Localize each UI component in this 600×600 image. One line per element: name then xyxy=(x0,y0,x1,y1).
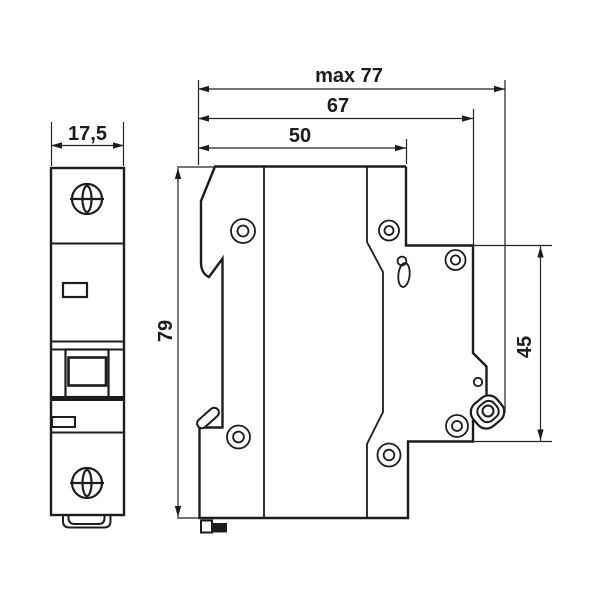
arrowhead-right-icon xyxy=(395,145,406,151)
arrowhead-up-icon xyxy=(537,247,543,258)
dim-depth-50: 50 xyxy=(198,125,407,164)
rivet-circle xyxy=(379,221,399,241)
side-view xyxy=(195,167,509,519)
dim-height-79: 79 xyxy=(155,167,214,518)
rivet-circle xyxy=(378,444,401,467)
keyhole-slot xyxy=(397,257,411,288)
toggle-handle xyxy=(69,358,107,386)
arrowhead-left-icon xyxy=(198,115,209,121)
dim-depth-max77: max 77 xyxy=(198,65,505,413)
rivet-circle xyxy=(231,219,255,243)
dim-depth-67: 67 xyxy=(198,95,474,246)
front-view xyxy=(51,168,124,528)
arrowhead-right-icon xyxy=(494,86,505,92)
arrowhead-right-icon xyxy=(462,115,473,121)
arrowhead-left-icon xyxy=(51,142,62,148)
rivet-circle xyxy=(227,426,250,449)
arrowhead-up-icon xyxy=(175,168,181,179)
rivet-circle xyxy=(446,415,468,437)
arrowhead-left-icon xyxy=(198,86,209,92)
side-rear-profile xyxy=(406,167,487,399)
arrowhead-right-icon xyxy=(113,142,124,148)
arrowhead-left-icon xyxy=(198,145,209,151)
din-clip-foot xyxy=(63,515,111,528)
dim-label-50: 50 xyxy=(289,125,311,147)
dim-label-width: 17,5 xyxy=(68,123,107,145)
arrowhead-down-icon xyxy=(175,506,181,517)
technical-drawing-canvas: 17,5 xyxy=(0,0,600,600)
small-hole xyxy=(474,378,482,386)
terminal-screw-top-icon xyxy=(70,184,104,214)
dim-label-max77: max 77 xyxy=(315,65,383,87)
rivet-circle xyxy=(446,250,466,270)
marking-window xyxy=(52,417,75,427)
arrowhead-down-icon xyxy=(537,430,543,441)
label-window xyxy=(63,283,87,297)
dim-label-67: 67 xyxy=(327,95,349,117)
circuit-breaker-dimension-drawing: 17,5 xyxy=(0,0,600,600)
dim-front-width: 17,5 xyxy=(51,122,124,166)
mould-seam-line xyxy=(367,167,383,518)
dim-label-45: 45 xyxy=(514,336,536,358)
dim-label-79: 79 xyxy=(155,320,177,342)
terminal-screw-bottom-icon xyxy=(70,468,104,498)
mounting-stub xyxy=(201,521,227,533)
